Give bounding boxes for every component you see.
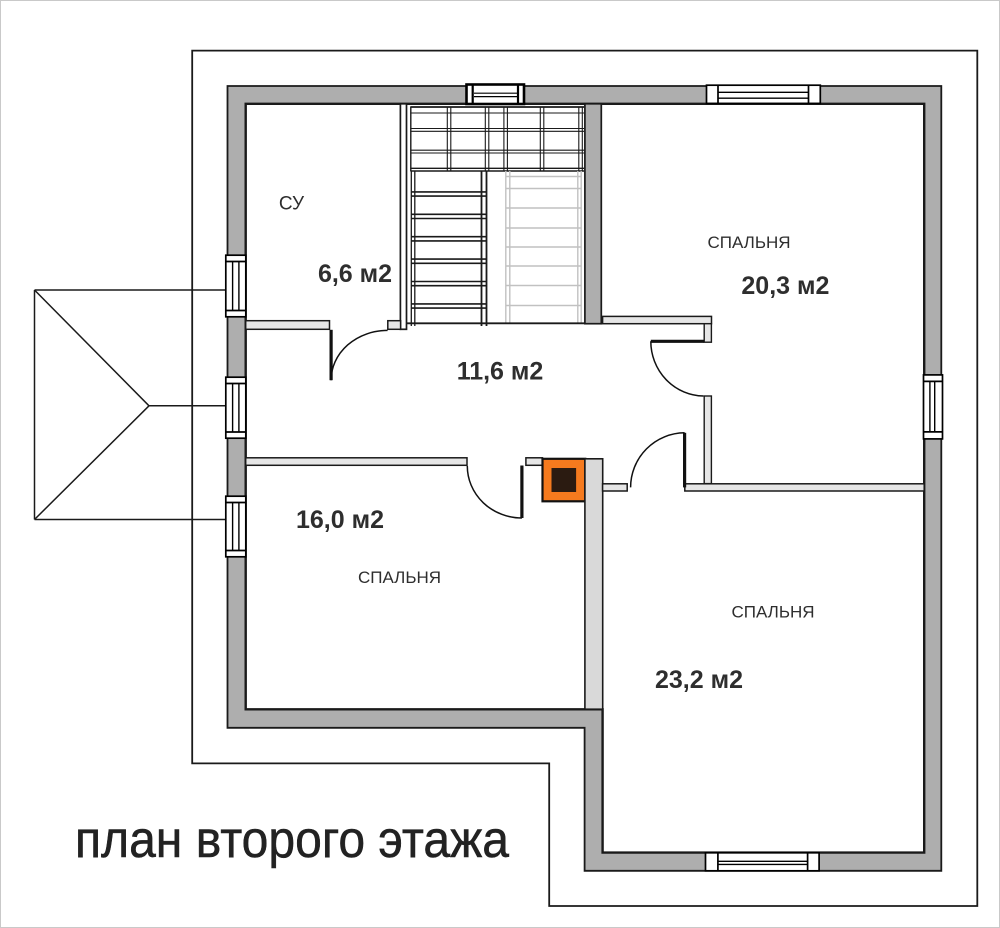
svg-text:СПАЛЬНЯ: СПАЛЬНЯ	[731, 603, 814, 622]
svg-text:СУ: СУ	[279, 194, 305, 215]
svg-text:6,6 м2: 6,6 м2	[318, 260, 392, 288]
svg-text:16,0 м2: 16,0 м2	[296, 506, 384, 534]
svg-text:20,3 м2: 20,3 м2	[741, 272, 829, 300]
svg-text:план второго этажа: план второго этажа	[75, 810, 509, 868]
svg-text:23,2 м2: 23,2 м2	[655, 666, 743, 694]
svg-text:СПАЛЬНЯ: СПАЛЬНЯ	[707, 233, 790, 252]
svg-text:СПАЛЬНЯ: СПАЛЬНЯ	[358, 568, 441, 587]
svg-text:11,6 м2: 11,6 м2	[457, 358, 544, 386]
